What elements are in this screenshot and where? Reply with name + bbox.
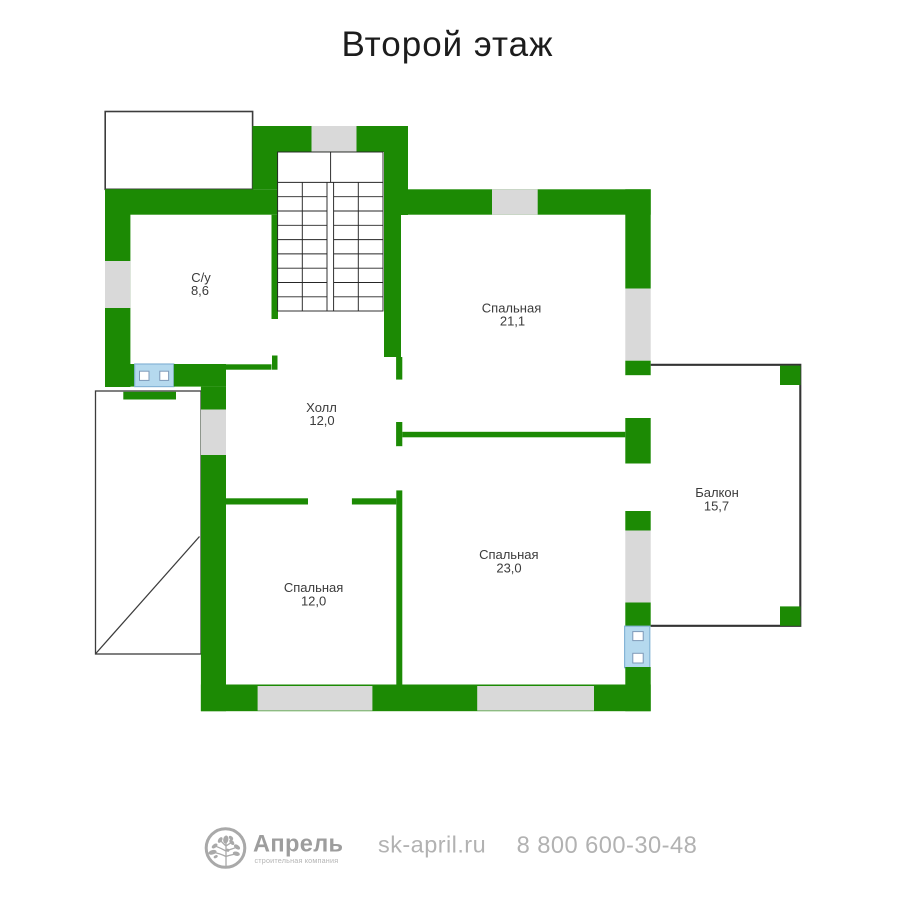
svg-text:15,7: 15,7 — [704, 499, 729, 514]
svg-text:8,6: 8,6 — [191, 283, 209, 298]
svg-text:sk-april.ru: sk-april.ru — [378, 832, 486, 858]
svg-text:21,1: 21,1 — [500, 314, 525, 329]
svg-text:23,0: 23,0 — [496, 561, 521, 576]
svg-text:12,0: 12,0 — [301, 594, 326, 609]
svg-text:Апрель: Апрель — [253, 832, 343, 858]
svg-text:Второй этаж: Второй этаж — [341, 25, 553, 64]
svg-text:12,0: 12,0 — [309, 413, 334, 428]
svg-text:8 800 600-30-48: 8 800 600-30-48 — [517, 833, 698, 859]
svg-text:строительная компания: строительная компания — [255, 856, 339, 865]
